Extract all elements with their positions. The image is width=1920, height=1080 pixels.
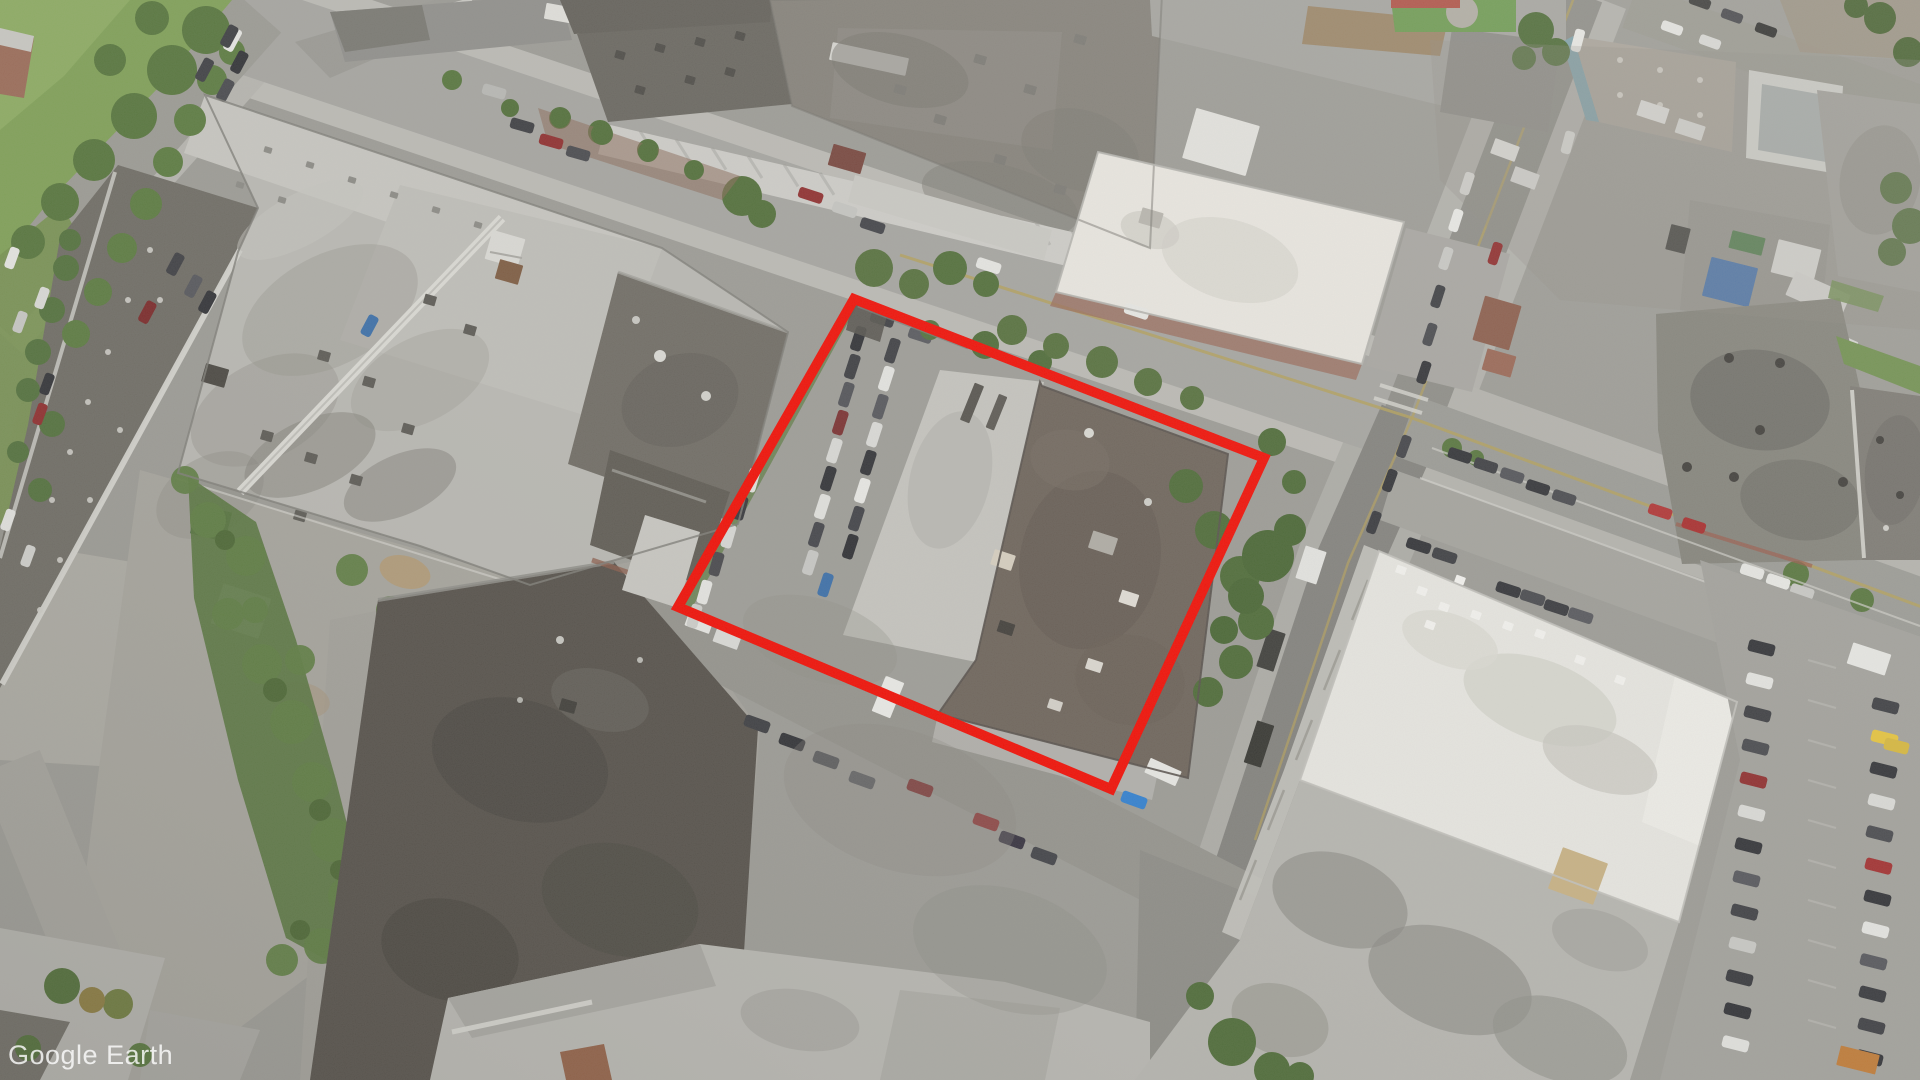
svg-text:Google Earth: Google Earth	[8, 1040, 173, 1070]
